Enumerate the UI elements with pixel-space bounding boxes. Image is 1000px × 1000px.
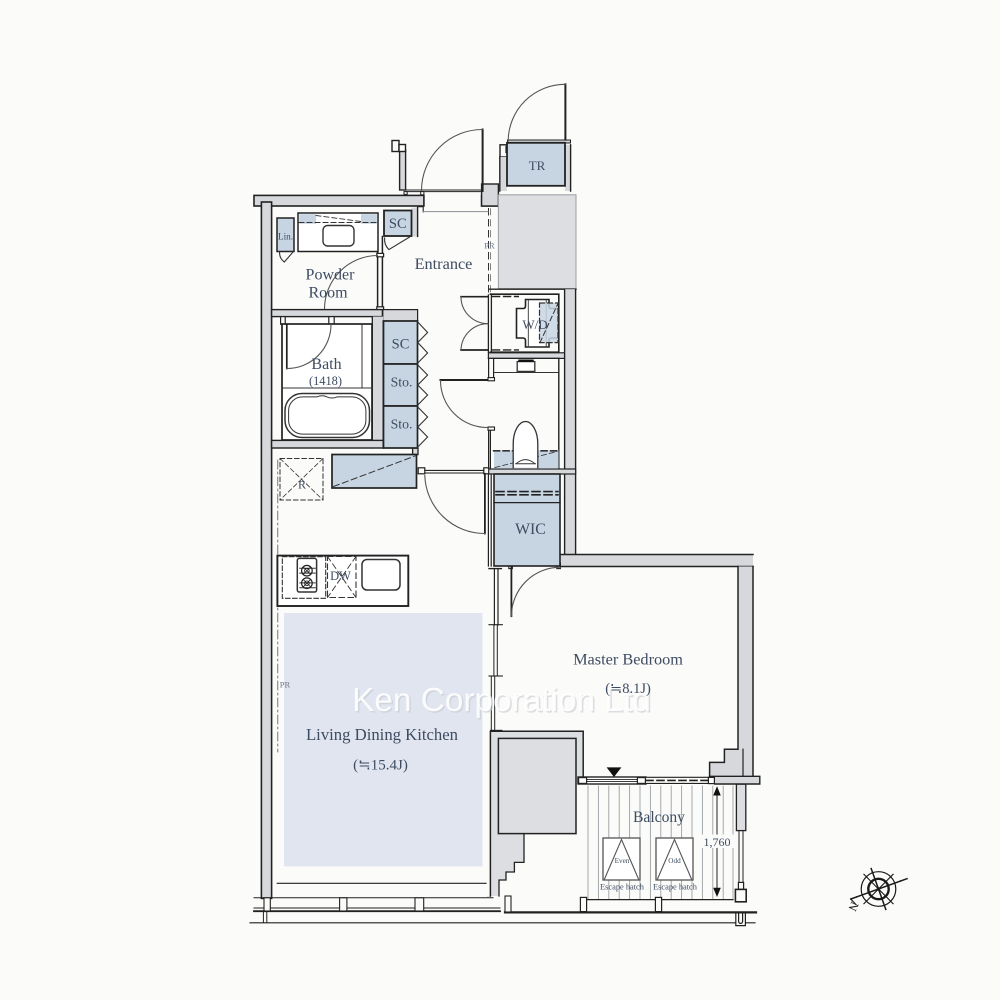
- svg-text:(≒8.1J): (≒8.1J): [605, 681, 651, 697]
- svg-text:(1418): (1418): [309, 374, 342, 388]
- svg-text:R: R: [298, 478, 306, 492]
- svg-text:Even: Even: [615, 857, 630, 865]
- svg-text:Sto.: Sto.: [391, 375, 413, 390]
- svg-text:Living Dining Kitchen: Living Dining Kitchen: [306, 725, 459, 744]
- svg-text:Lin.: Lin.: [278, 232, 293, 242]
- svg-text:DW: DW: [330, 569, 351, 583]
- svg-text:TR: TR: [529, 158, 546, 173]
- svg-text:Bath: Bath: [311, 356, 341, 373]
- svg-text:PR: PR: [484, 241, 495, 251]
- svg-text:Odd: Odd: [668, 857, 681, 865]
- svg-text:Escape hatch: Escape hatch: [600, 883, 645, 892]
- svg-text:SC: SC: [389, 216, 407, 232]
- svg-text:Escape hatch: Escape hatch: [653, 883, 698, 892]
- svg-text:SC: SC: [392, 337, 410, 353]
- svg-text:PR: PR: [280, 680, 291, 690]
- svg-text:Balcony: Balcony: [633, 809, 685, 826]
- svg-text:Powder: Powder: [306, 267, 356, 284]
- svg-text:Entrance: Entrance: [415, 254, 473, 273]
- svg-text:WIC: WIC: [515, 521, 546, 538]
- svg-text:(≒15.4J): (≒15.4J): [353, 758, 408, 774]
- svg-text:Sto.: Sto.: [391, 417, 413, 432]
- svg-text:W/D: W/D: [522, 317, 547, 332]
- svg-text:Room: Room: [308, 285, 348, 302]
- svg-text:1,760: 1,760: [704, 835, 731, 849]
- svg-text:Master Bedroom: Master Bedroom: [573, 650, 683, 669]
